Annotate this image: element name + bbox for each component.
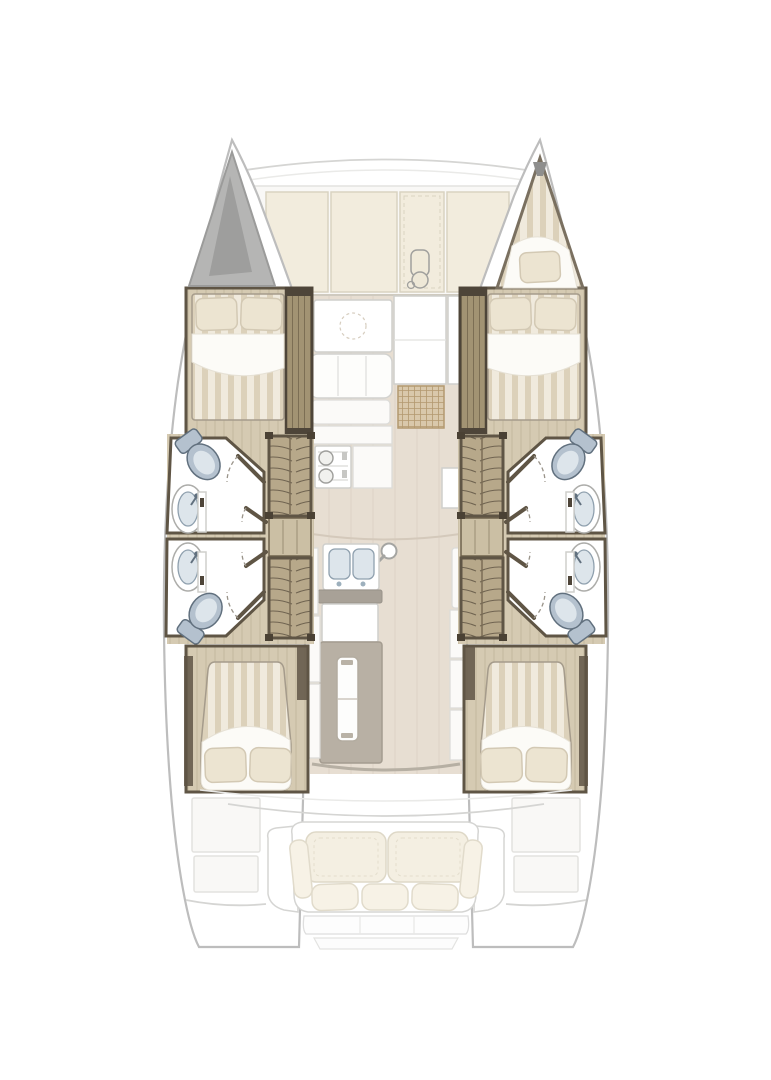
catamaran-floorplan: [0, 0, 771, 1080]
seat-pillow: [362, 884, 408, 910]
back-cushion: [306, 832, 386, 882]
woven-mat: [398, 386, 444, 428]
pillow: [519, 251, 561, 283]
floorplan-canvas: [0, 0, 771, 1080]
windlass-panel: [400, 192, 444, 292]
stove: [315, 446, 351, 488]
transom-steps: [303, 916, 468, 949]
sunpad-cushion: [331, 192, 397, 292]
cockpit-bench: [268, 822, 505, 912]
storage-cabinet: [394, 296, 460, 384]
settee: [310, 354, 392, 424]
salon: [296, 294, 478, 774]
double-sink: [323, 544, 379, 590]
seat-pillow: [412, 883, 459, 911]
back-cushion: [388, 832, 468, 882]
seat-pillow: [312, 883, 359, 911]
dinette-table: [314, 300, 392, 352]
